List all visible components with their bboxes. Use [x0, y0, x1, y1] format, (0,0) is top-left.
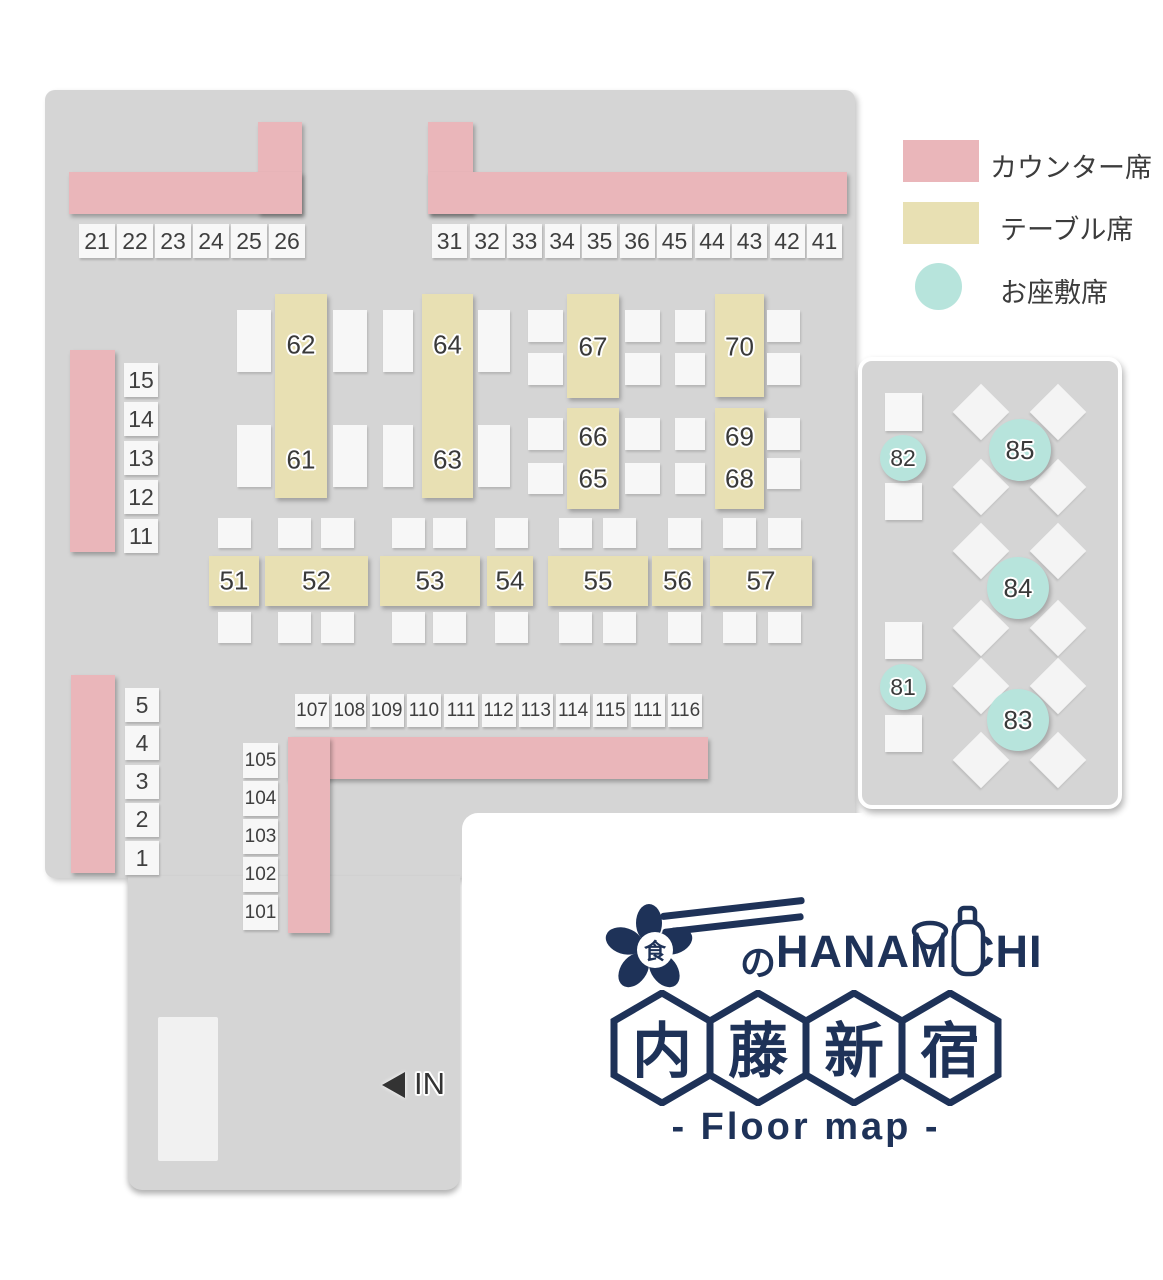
zashiki-seat-83: 83: [987, 689, 1049, 751]
logo-hex-char: 藤: [728, 1003, 788, 1090]
seat-plain: [675, 353, 705, 385]
legend-table-label: テーブル席: [1000, 208, 1133, 247]
table-66-65: 6665: [567, 408, 619, 509]
seat-plain: [528, 418, 563, 450]
seat-plain: [218, 518, 251, 548]
seat-plain: [278, 612, 311, 643]
seat-111: 111: [631, 694, 665, 727]
zashiki-seat-82: 82: [880, 435, 926, 481]
seat-plain: [603, 518, 636, 548]
seat-plain: [675, 418, 705, 450]
seat-plain: [625, 310, 660, 342]
logo-hexagon: 宿: [898, 990, 1002, 1106]
table-57: 57: [710, 556, 812, 606]
legend-counter-label: カウンター席: [990, 146, 1152, 185]
legend-counter-swatch: [903, 140, 979, 182]
seat-plain: [625, 353, 660, 385]
logo-no-char: の: [740, 934, 776, 986]
counter-table: [428, 172, 847, 214]
seat-plain: [321, 518, 354, 548]
counter-table: [288, 737, 330, 933]
seat-plain: [559, 612, 592, 643]
logo-hex-char: 宿: [920, 1003, 980, 1090]
seat-104: 104: [243, 781, 278, 816]
table-label-55: 55: [584, 566, 613, 597]
seat-plain: [885, 393, 922, 431]
seat-44: 44: [695, 224, 730, 258]
restaurant-floor-map: 2122232425263132333435364544434241151413…: [0, 0, 1163, 1280]
seat-plain: [723, 612, 756, 643]
seat-plain: [333, 310, 367, 372]
seat-24: 24: [193, 224, 229, 258]
seat-32: 32: [470, 224, 505, 258]
table-label-51: 51: [220, 566, 249, 597]
seat-14: 14: [124, 402, 158, 436]
logo-subtitle: - Floor map -: [606, 1106, 1006, 1149]
entrance-arrow-icon: [382, 1072, 405, 1098]
seat-101: 101: [243, 895, 278, 930]
seat-43: 43: [732, 224, 767, 258]
table-55: 55: [548, 556, 648, 606]
counter-table: [71, 675, 115, 873]
table-label-69: 69: [725, 422, 754, 453]
counter-table: [69, 172, 302, 214]
seat-plain: [321, 612, 354, 643]
seat-4: 4: [125, 726, 159, 760]
seat-plain: [767, 458, 800, 489]
seat-plain: [668, 518, 701, 548]
seat-plain: [433, 612, 466, 643]
table-51: 51: [209, 556, 259, 606]
seat-31: 31: [432, 224, 467, 258]
seat-111: 111: [444, 694, 478, 727]
seat-1: 1: [125, 841, 159, 875]
seat-plain: [768, 612, 801, 643]
legend-zashiki-label: お座敷席: [1000, 271, 1108, 310]
table-label-56: 56: [663, 566, 692, 597]
seat-plain: [767, 418, 800, 450]
seat-5: 5: [125, 688, 159, 722]
legend-table-swatch: [903, 202, 979, 244]
table-label-67: 67: [579, 332, 608, 363]
logo-hexagon: 内: [610, 990, 714, 1106]
table-52: 52: [265, 556, 368, 606]
seat-plain: [885, 483, 922, 520]
seat-13: 13: [124, 441, 158, 475]
seat-25: 25: [231, 224, 267, 258]
seat-plain: [495, 612, 528, 643]
seat-plain: [528, 353, 563, 385]
table-label-68: 68: [725, 464, 754, 495]
table-label-62: 62: [287, 330, 316, 361]
seat-plain: [333, 425, 367, 487]
seat-33: 33: [507, 224, 542, 258]
seat-22: 22: [117, 224, 153, 258]
table-label-66: 66: [579, 422, 608, 453]
table-label-57: 57: [747, 566, 776, 597]
shoku-character-badge: 食: [637, 932, 673, 968]
seat-plain: [723, 518, 756, 548]
seat-41: 41: [807, 224, 842, 258]
seat-plain: [675, 310, 705, 342]
seat-113: 113: [519, 694, 553, 727]
seat-36: 36: [620, 224, 655, 258]
seat-plain: [495, 518, 528, 548]
seat-plain: [392, 612, 425, 643]
table-label-70: 70: [725, 332, 754, 363]
counter-table: [288, 737, 708, 779]
seat-103: 103: [243, 819, 278, 854]
seat-plain: [237, 425, 271, 487]
seat-112: 112: [482, 694, 516, 727]
seat-plain: [625, 418, 660, 450]
table-62-61: 6261: [275, 294, 327, 498]
table-label-53: 53: [416, 566, 445, 597]
seat-plain: [383, 425, 413, 487]
seat-42: 42: [770, 224, 805, 258]
seat-plain: [278, 518, 311, 548]
seat-12: 12: [124, 480, 158, 514]
zashiki-seat-81: 81: [880, 664, 926, 710]
seat-plain: [478, 310, 510, 372]
table-69-68: 6968: [715, 408, 764, 509]
seat-plain: [433, 518, 466, 548]
seat-plain: [885, 622, 922, 659]
seat-34: 34: [545, 224, 580, 258]
seat-21: 21: [79, 224, 115, 258]
legend-zashiki-swatch: [915, 263, 962, 310]
seat-116: 116: [668, 694, 702, 727]
table-54: 54: [487, 556, 533, 606]
seat-plain: [603, 612, 636, 643]
seat-23: 23: [155, 224, 191, 258]
seat-114: 114: [556, 694, 590, 727]
table-53: 53: [380, 556, 480, 606]
seat-102: 102: [243, 857, 278, 892]
zashiki-seat-85: 85: [989, 419, 1051, 481]
seat-15: 15: [124, 363, 158, 397]
seat-plain: [625, 463, 660, 494]
logo-hex-char: 内: [632, 1003, 692, 1090]
logo-hex-char: 新: [824, 1003, 884, 1090]
seat-35: 35: [582, 224, 617, 258]
seat-plain: [218, 612, 251, 643]
table-64-63: 6463: [422, 294, 473, 498]
table-label-61: 61: [287, 445, 316, 476]
seat-105: 105: [243, 743, 278, 778]
seat-plain: [528, 463, 563, 494]
table-67: 67: [567, 294, 619, 398]
seat-plain: [668, 612, 701, 643]
seat-2: 2: [125, 803, 159, 837]
seat-plain: [392, 518, 425, 548]
seat-115: 115: [593, 694, 627, 727]
table-label-63: 63: [433, 445, 462, 476]
table-label-54: 54: [496, 566, 525, 597]
logo-hexagon: 藤: [706, 990, 810, 1106]
table-70: 70: [715, 294, 764, 397]
seat-plain: [885, 715, 922, 752]
logo-hexagon: 新: [802, 990, 906, 1106]
seat-3: 3: [125, 765, 159, 799]
door-rect: [158, 1017, 218, 1161]
table-label-65: 65: [579, 464, 608, 495]
table-56: 56: [652, 556, 703, 606]
seat-108: 108: [332, 694, 366, 727]
seat-plain: [767, 310, 800, 342]
zashiki-seat-84: 84: [987, 557, 1049, 619]
seat-109: 109: [370, 694, 404, 727]
entrance-label: IN: [414, 1066, 445, 1102]
seat-26: 26: [269, 224, 305, 258]
seat-plain: [237, 310, 271, 372]
seat-plain: [528, 310, 563, 342]
seat-plain: [383, 310, 413, 372]
seat-110: 110: [407, 694, 441, 727]
table-label-64: 64: [433, 330, 462, 361]
seat-107: 107: [295, 694, 329, 727]
sake-set-icon: [910, 900, 992, 986]
seat-plain: [768, 518, 801, 548]
seat-plain: [767, 353, 800, 385]
counter-table: [70, 350, 115, 552]
seat-11: 11: [124, 519, 158, 553]
seat-45: 45: [657, 224, 692, 258]
table-label-52: 52: [302, 566, 331, 597]
seat-plain: [675, 463, 705, 494]
seat-plain: [559, 518, 592, 548]
seat-plain: [478, 425, 510, 487]
